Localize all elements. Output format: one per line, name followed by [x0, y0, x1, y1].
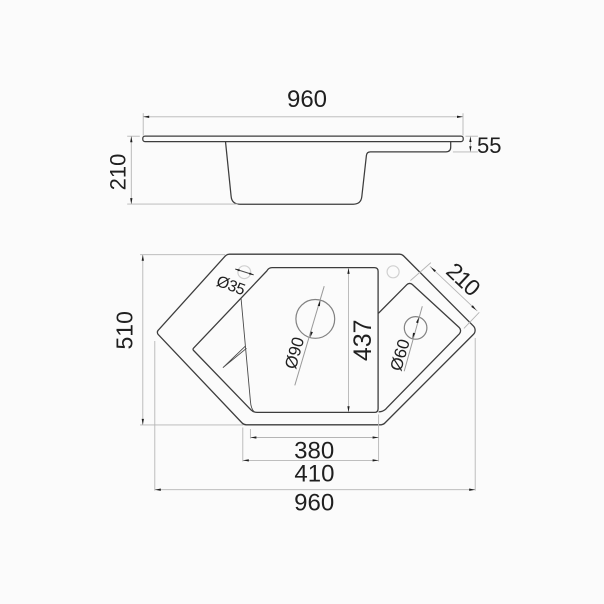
- svg-text:410: 410: [294, 460, 334, 487]
- svg-text:510: 510: [112, 311, 138, 349]
- svg-text:210: 210: [106, 154, 131, 191]
- svg-text:55: 55: [477, 133, 501, 158]
- svg-text:437: 437: [349, 319, 377, 361]
- svg-text:960: 960: [287, 86, 327, 113]
- svg-text:960: 960: [294, 489, 334, 516]
